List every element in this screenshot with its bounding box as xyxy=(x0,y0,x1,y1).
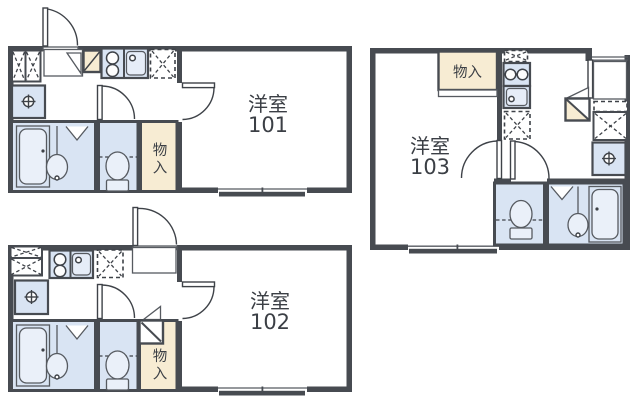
refrigerator-space-101 xyxy=(151,50,176,79)
washing-machine-space-101 xyxy=(12,51,41,82)
floorplan: 物入 洋室 101 xyxy=(0,0,640,400)
room-number-103: 103 xyxy=(410,155,450,179)
toilet-room-101 xyxy=(99,122,139,192)
bathroom-101 xyxy=(12,122,96,192)
toilet-door-103 xyxy=(511,141,550,179)
storage-closet-102: 物入 xyxy=(140,307,178,391)
entry-floor-103 xyxy=(594,62,627,100)
bathroom-103 xyxy=(548,183,625,245)
entry-floor-101 xyxy=(44,50,83,77)
refrigerator-space-103 xyxy=(505,112,531,140)
storage-label-101: 物入 xyxy=(151,142,167,177)
range-hood-103 xyxy=(505,51,528,62)
washing-machine-space-102 xyxy=(11,247,43,276)
kitchen-sink-101 xyxy=(127,52,146,76)
shoe-cabinet-101 xyxy=(84,51,101,73)
shoe-cabinet-103 xyxy=(566,88,590,121)
toilet-103 xyxy=(510,201,532,240)
floorplan-canvas: 物入 洋室 101 xyxy=(0,0,640,400)
toilet-102 xyxy=(106,351,129,390)
refrigerator-space-102 xyxy=(98,250,124,278)
storage-label-102: 物入 xyxy=(151,348,167,383)
storage-closet-103: 物入 xyxy=(439,52,498,97)
kitchen-sink-103 xyxy=(504,86,531,108)
toilet-door-102 xyxy=(98,285,135,319)
unit-102: 物入 洋室 102 xyxy=(8,208,352,396)
laundry-pan-102 xyxy=(15,281,48,315)
window-103 xyxy=(408,245,499,254)
storage-label-103: 物入 xyxy=(453,64,482,81)
room-door-102 xyxy=(183,282,215,319)
shoe-cabinet-102 xyxy=(140,321,164,344)
entry-floor-102 xyxy=(133,248,177,274)
room-number-101: 101 xyxy=(248,113,288,137)
storage-closet-101: 物入 xyxy=(141,122,178,192)
washing-machine-space-103 xyxy=(594,102,628,141)
unit-101: 物入 洋室 101 xyxy=(8,8,352,197)
room-door-103 xyxy=(462,141,502,179)
window-101 xyxy=(218,188,307,197)
stove-103 xyxy=(504,63,531,86)
bathtub-103 xyxy=(589,187,621,243)
kitchen-sink-102 xyxy=(73,254,91,276)
upper-cabinet-mark-102 xyxy=(144,307,161,320)
window-102 xyxy=(218,387,307,396)
room-door-101 xyxy=(183,83,215,120)
bathroom-102 xyxy=(12,321,96,391)
room-number-102: 102 xyxy=(250,310,290,334)
laundry-pan-103 xyxy=(593,143,626,176)
toilet-door-101 xyxy=(98,86,135,120)
entry-door-101 xyxy=(43,8,78,51)
entry-door-102 xyxy=(133,208,177,250)
laundry-pan-101 xyxy=(12,86,45,119)
unit-103: 物入 xyxy=(370,48,630,254)
upper-cabinet-mark-103 xyxy=(567,88,589,99)
toilet-101 xyxy=(106,152,129,191)
toilet-room-102 xyxy=(99,321,139,391)
bathtub-101 xyxy=(17,126,50,187)
toilet-room-103 xyxy=(495,183,545,245)
bathtub-102 xyxy=(17,325,50,386)
